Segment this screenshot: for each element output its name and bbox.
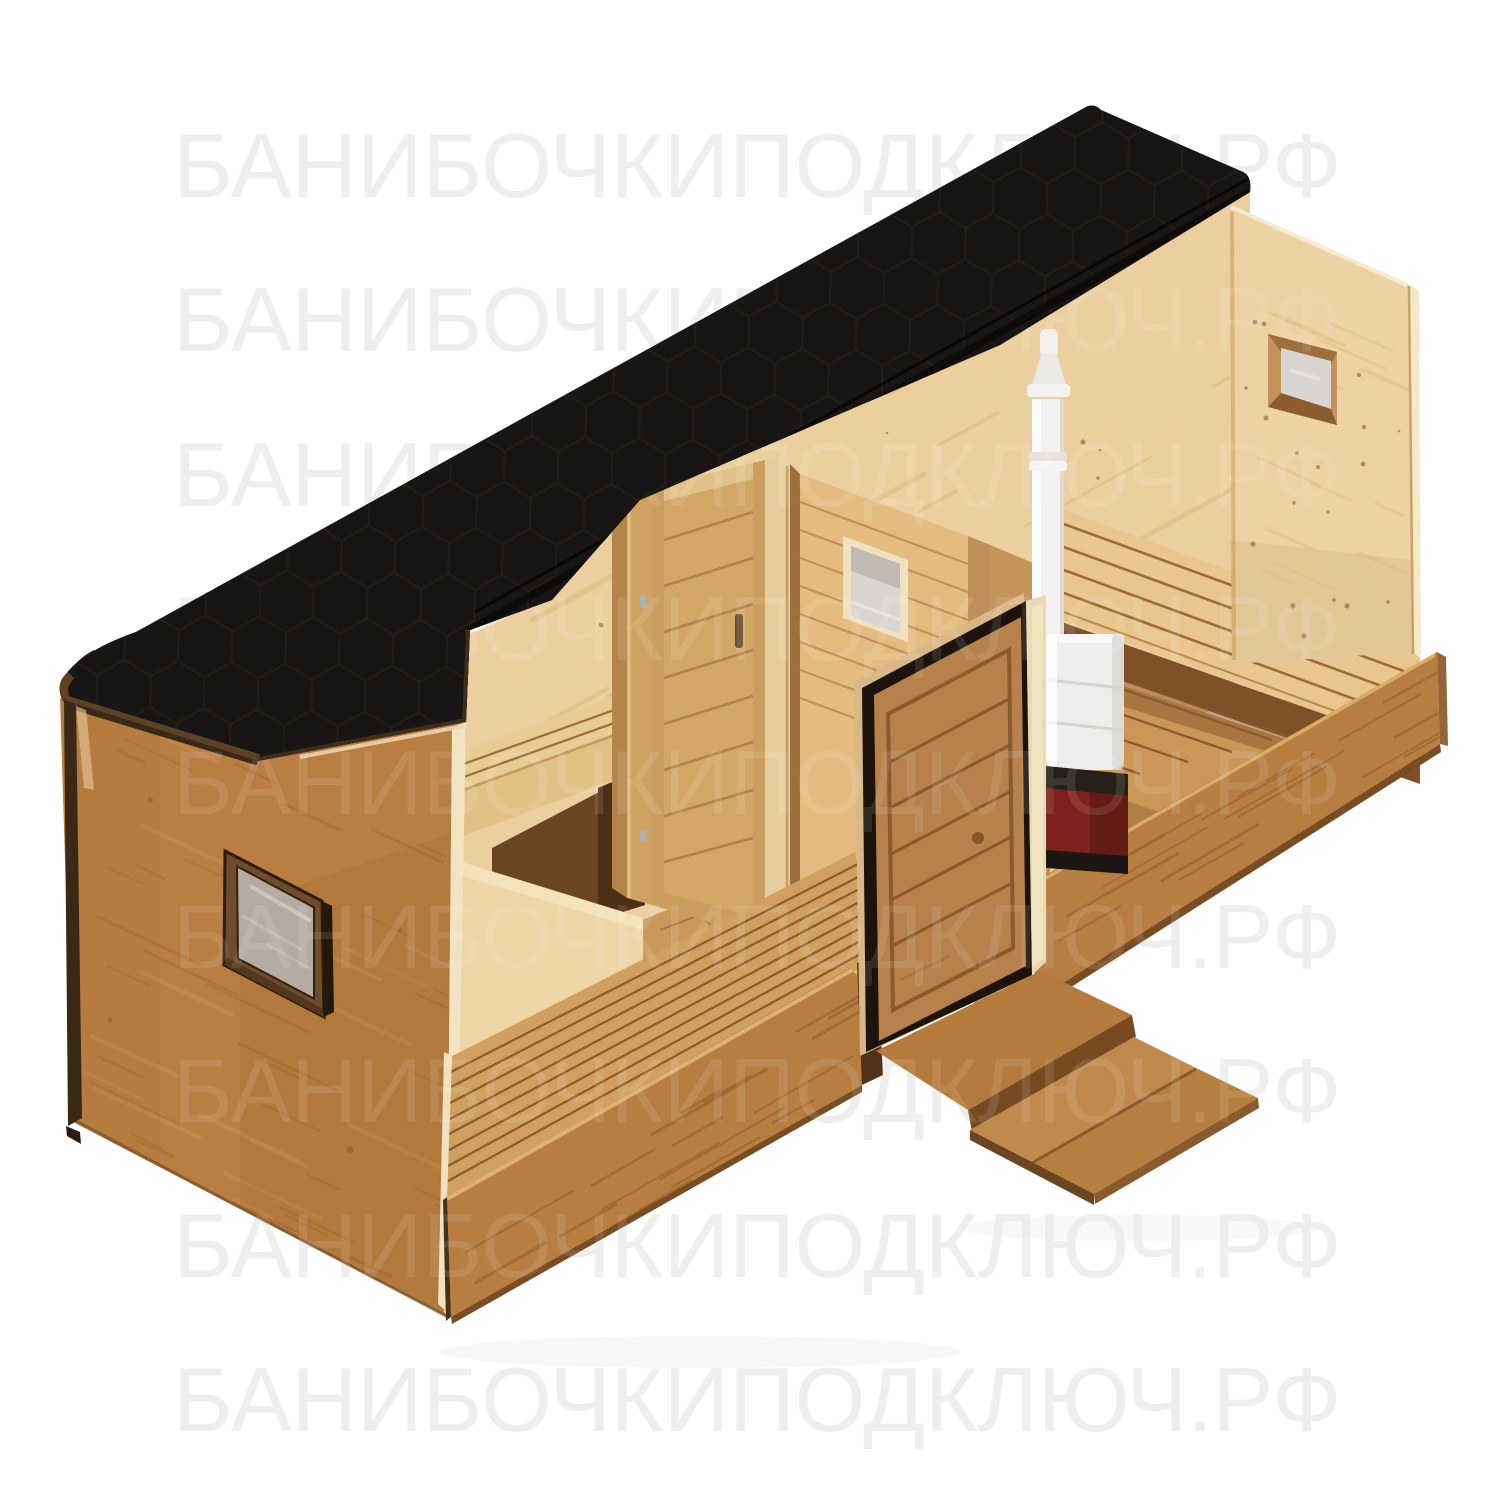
- svg-text:БАНИБОЧКИПОДКЛЮЧ.РФ: БАНИБОЧКИПОДКЛЮЧ.РФ: [173, 1041, 1341, 1142]
- svg-text:БАНИБОЧКИПОДКЛЮЧ.РФ: БАНИБОЧКИПОДКЛЮЧ.РФ: [173, 887, 1341, 988]
- svg-text:БАНИБОЧКИПОДКЛЮЧ.РФ: БАНИБОЧКИПОДКЛЮЧ.РФ: [173, 733, 1341, 834]
- svg-text:БАНИБОЧКИПОДКЛЮЧ.РФ: БАНИБОЧКИПОДКЛЮЧ.РФ: [173, 1350, 1341, 1451]
- svg-text:БАНИБОЧКИПОДКЛЮЧ.РФ: БАНИБОЧКИПОДКЛЮЧ.РФ: [173, 1196, 1341, 1297]
